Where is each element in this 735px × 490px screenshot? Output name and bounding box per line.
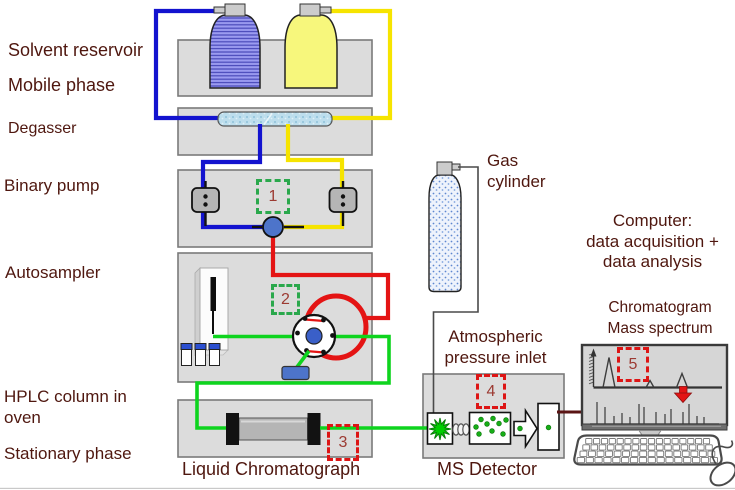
bottle-nozzle <box>320 7 331 13</box>
label-mobile-phase: Mobile phase <box>8 75 115 97</box>
gas-cylinder <box>429 162 461 292</box>
degasser-membrane <box>218 112 332 126</box>
bottle-cap <box>300 4 320 16</box>
bottle-cap <box>225 4 245 16</box>
sample-vials <box>181 344 220 366</box>
ion-optics-coils <box>453 424 469 435</box>
cylinder-valve-cap <box>437 162 452 175</box>
detector-cell <box>538 404 559 451</box>
solvent-bottle-yellow <box>285 4 337 88</box>
step-marker-3: 3 <box>327 424 359 461</box>
step-marker-1: 1 <box>256 179 290 214</box>
label-atmospheric-line1: Atmospheric <box>423 327 568 348</box>
label-degasser: Degasser <box>8 119 76 139</box>
label-computer-line3: data analysis <box>570 252 735 273</box>
slide-bottom-edge <box>0 488 735 489</box>
bottle-nozzle <box>214 7 225 13</box>
label-solvent-reservoir: Solvent reservoir <box>8 40 143 62</box>
label-mass-spectrum: Mass spectrum <box>580 320 735 339</box>
label-hplc-column: HPLC column in oven <box>4 387 156 428</box>
label-atmospheric-inlet: Atmospheric pressure inlet <box>423 327 568 368</box>
step-marker-2-number: 2 <box>281 291 290 309</box>
step-marker-3-number: 3 <box>339 434 348 452</box>
monitor-bezel <box>582 424 727 430</box>
step-marker-4-number: 4 <box>487 383 496 401</box>
label-stationary-phase: Stationary phase <box>4 444 132 465</box>
solvent-bottle-blue <box>210 4 260 88</box>
label-autosampler: Autosampler <box>5 263 100 284</box>
step-marker-2: 2 <box>271 284 300 315</box>
label-liquid-chromatograph: Liquid Chromatograph <box>182 459 360 481</box>
label-chromatogram: Chromatogram <box>580 299 735 318</box>
label-computer-line1: Computer: <box>570 211 735 232</box>
step-marker-5-number: 5 <box>629 356 638 374</box>
step-marker-1-number: 1 <box>269 188 278 206</box>
solvent-tray-box <box>178 40 372 96</box>
hplc-column <box>226 413 321 445</box>
label-gas-cylinder: Gas cylinder <box>487 151 565 192</box>
waste-tray <box>282 367 309 380</box>
keyboard <box>574 436 721 465</box>
label-computer-line2: data acquisition + <box>570 232 735 253</box>
label-ms-detector: MS Detector <box>437 459 537 481</box>
quadrupole-cell <box>470 413 511 445</box>
label-computer: Computer: data acquisition + data analys… <box>570 211 735 273</box>
label-binary-pump: Binary pump <box>4 176 99 197</box>
step-marker-4: 4 <box>476 374 506 409</box>
step-marker-5: 5 <box>617 347 649 382</box>
injection-valve <box>293 315 335 357</box>
label-atmospheric-line2: pressure inlet <box>423 348 568 369</box>
lcms-system-diagram: Solvent reservoir Mobile phase Degasser … <box>0 0 735 490</box>
